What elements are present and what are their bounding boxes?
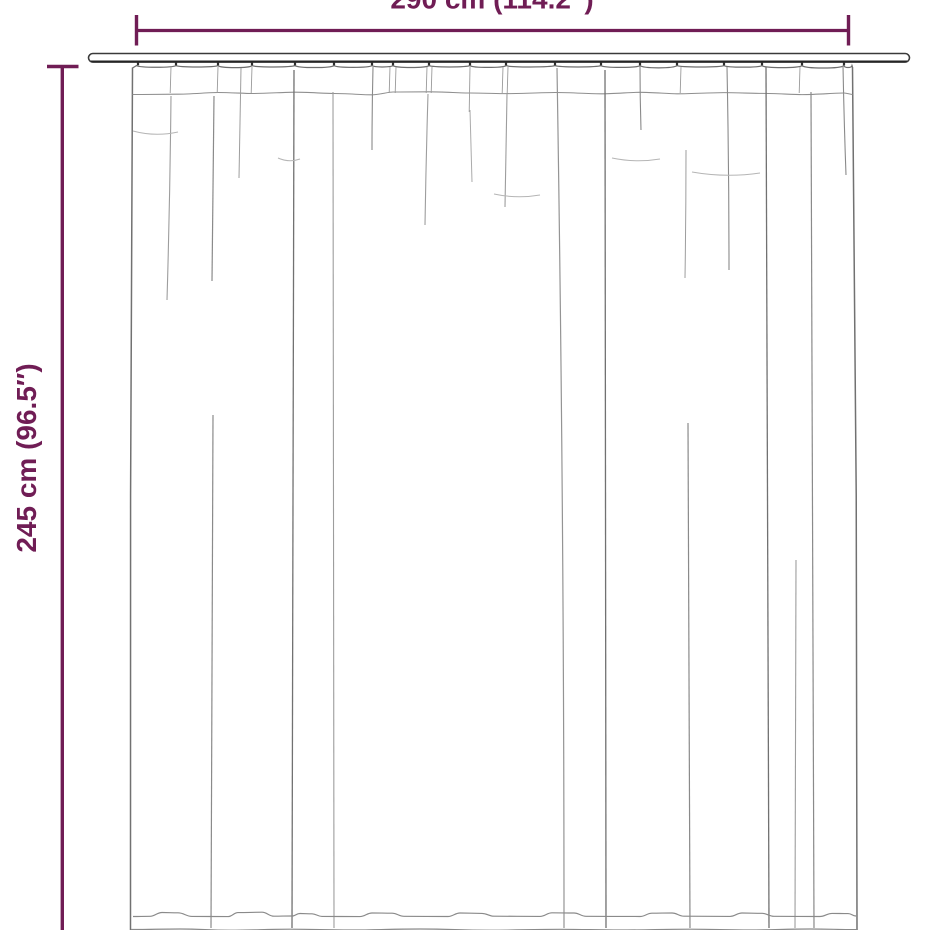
svg-text:245 cm (96.5″): 245 cm (96.5″) [11, 363, 42, 552]
svg-text:290 cm (114.2″): 290 cm (114.2″) [390, 0, 593, 15]
